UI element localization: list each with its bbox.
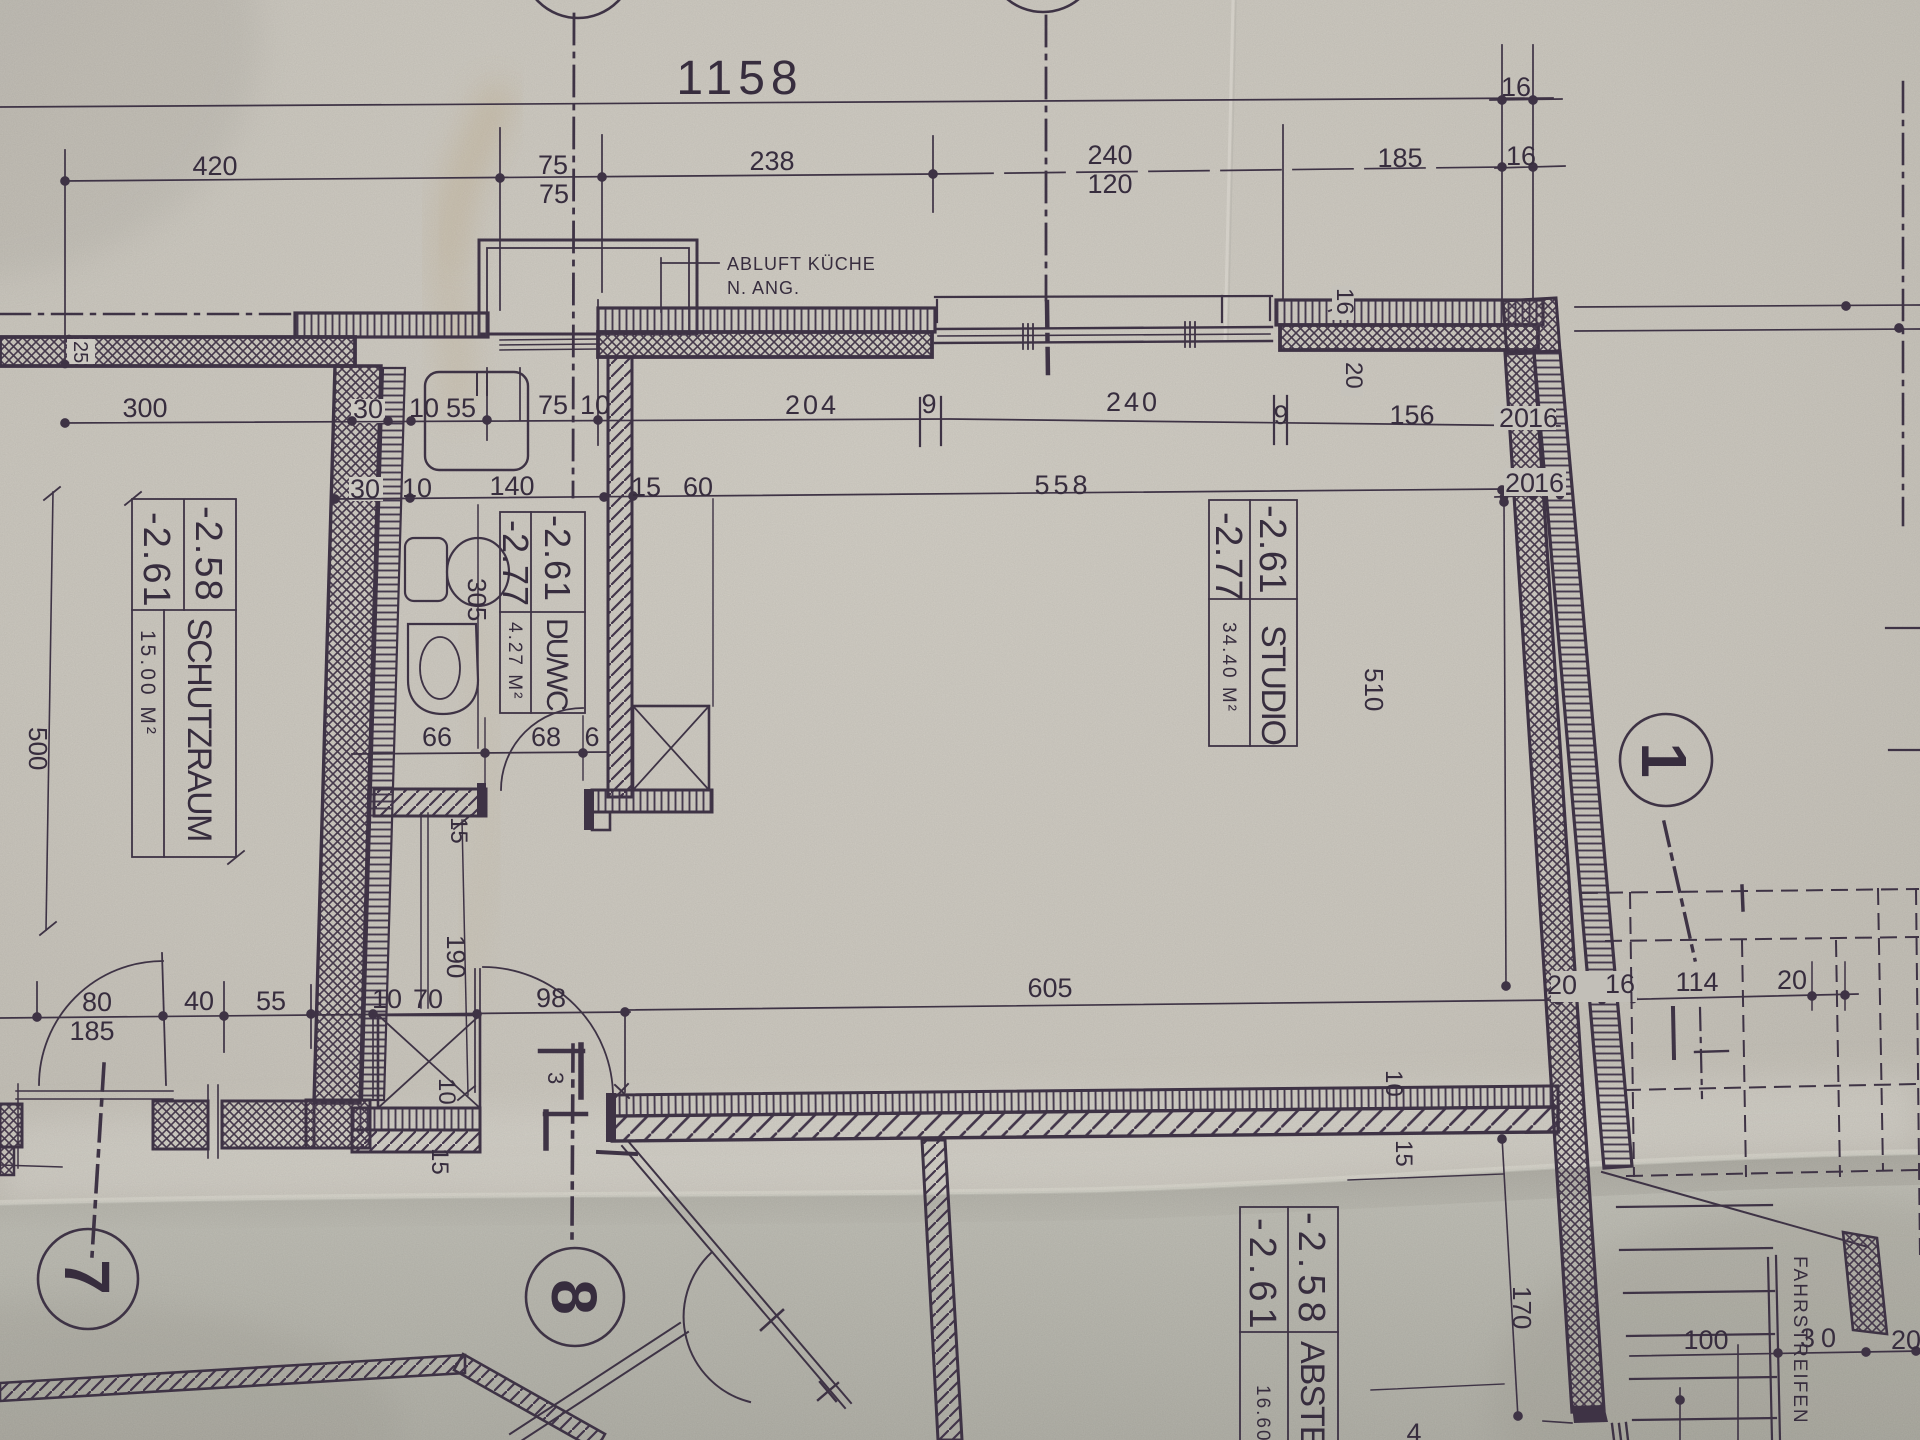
svg-text:SCHUTZRAUM: SCHUTZRAUM — [180, 618, 218, 841]
svg-text:15: 15 — [631, 472, 661, 502]
svg-text:240: 240 — [1106, 387, 1160, 417]
svg-text:-2.61: -2.61 — [1251, 505, 1293, 594]
svg-text:20: 20 — [1499, 403, 1529, 433]
svg-text:10: 10 — [402, 473, 432, 503]
svg-text:605: 605 — [1027, 973, 1072, 1003]
svg-text:68: 68 — [531, 722, 561, 752]
svg-text:156: 156 — [1389, 400, 1434, 430]
svg-text:FAHRSTREIFEN: FAHRSTREIFEN — [1789, 1256, 1810, 1425]
svg-text:-2.61: -2.61 — [1241, 1218, 1283, 1335]
svg-text:100: 100 — [1683, 1325, 1728, 1355]
svg-text:1: 1 — [1628, 742, 1700, 778]
svg-text:ABSTELLR: ABSTELLR — [1293, 1341, 1331, 1440]
svg-text:558: 558 — [1034, 470, 1091, 500]
svg-text:9: 9 — [921, 389, 936, 419]
svg-text:140: 140 — [489, 471, 534, 501]
svg-text:ABLUFT KÜCHE: ABLUFT KÜCHE — [727, 254, 876, 274]
svg-text:190: 190 — [441, 935, 471, 978]
svg-text:20: 20 — [1547, 970, 1577, 1000]
svg-text:34.40 M²: 34.40 M² — [1218, 622, 1239, 713]
svg-text:4: 4 — [1406, 1418, 1421, 1440]
svg-text:20: 20 — [1340, 362, 1367, 389]
svg-text:-2.58: -2.58 — [1290, 1212, 1332, 1329]
svg-text:510: 510 — [1359, 668, 1389, 711]
svg-text:240: 240 — [1087, 140, 1132, 170]
svg-text:420: 420 — [192, 151, 237, 181]
svg-text:6: 6 — [584, 722, 599, 752]
svg-text:-2.61: -2.61 — [537, 515, 578, 602]
svg-text:30: 30 — [353, 394, 383, 424]
svg-text:10: 10 — [409, 393, 439, 423]
svg-text:70: 70 — [413, 984, 443, 1014]
svg-text:-2.58: -2.58 — [187, 506, 229, 603]
svg-text:300: 300 — [122, 393, 167, 423]
svg-text:7: 7 — [51, 1259, 123, 1295]
svg-text:16: 16 — [1501, 72, 1531, 102]
svg-text:60: 60 — [683, 472, 713, 502]
svg-text:114: 114 — [1675, 967, 1718, 997]
svg-text:120: 120 — [1087, 169, 1132, 199]
svg-text:-2.77: -2.77 — [495, 520, 536, 607]
svg-text:-2.61: -2.61 — [135, 512, 177, 609]
svg-text:1158: 1158 — [676, 52, 803, 105]
svg-text:20: 20 — [1505, 468, 1535, 498]
svg-text:10: 10 — [433, 1078, 460, 1105]
svg-text:15.00 M²: 15.00 M² — [136, 630, 159, 737]
svg-text:-2.77: -2.77 — [1207, 512, 1249, 601]
svg-text:40: 40 — [184, 986, 214, 1016]
svg-text:80: 80 — [82, 987, 112, 1017]
svg-text:15: 15 — [445, 817, 472, 844]
svg-text:STUDIO: STUDIO — [1254, 625, 1292, 745]
svg-text:16.60 M: 16.60 M — [1252, 1385, 1273, 1440]
svg-text:55: 55 — [446, 393, 476, 423]
svg-text:20: 20 — [1891, 1325, 1920, 1355]
svg-text:15: 15 — [1390, 1140, 1417, 1167]
svg-text:3: 3 — [543, 1072, 568, 1084]
svg-text:55: 55 — [256, 986, 286, 1016]
svg-text:75: 75 — [538, 150, 568, 180]
svg-text:66: 66 — [422, 722, 452, 752]
svg-text:16: 16 — [1506, 141, 1536, 171]
svg-text:25: 25 — [69, 341, 91, 363]
svg-text:10: 10 — [372, 984, 402, 1014]
svg-text:10: 10 — [1380, 1070, 1407, 1097]
svg-text:16: 16 — [1528, 403, 1558, 433]
svg-text:500: 500 — [23, 727, 53, 770]
svg-text:305: 305 — [462, 578, 492, 621]
svg-text:185: 185 — [1377, 143, 1422, 173]
svg-text:DU/WC: DU/WC — [540, 618, 573, 711]
svg-text:N. ANG.: N. ANG. — [727, 278, 800, 298]
svg-text:170: 170 — [1507, 1286, 1537, 1329]
svg-text:98: 98 — [536, 983, 566, 1013]
svg-text:30: 30 — [350, 474, 380, 504]
svg-text:4.27 M²: 4.27 M² — [504, 622, 525, 700]
svg-text:185: 185 — [69, 1016, 114, 1046]
svg-text:75: 75 — [539, 179, 569, 209]
svg-text:16: 16 — [1331, 288, 1358, 315]
svg-text:9: 9 — [1273, 400, 1288, 430]
svg-text:204: 204 — [785, 390, 839, 420]
svg-text:10: 10 — [580, 390, 610, 420]
svg-text:15: 15 — [426, 1148, 453, 1175]
svg-text:16: 16 — [1605, 969, 1635, 999]
svg-text:75: 75 — [538, 390, 568, 420]
svg-text:20: 20 — [1777, 965, 1807, 995]
svg-text:16: 16 — [1534, 468, 1564, 498]
svg-text:8: 8 — [538, 1279, 610, 1315]
svg-text:238: 238 — [749, 146, 794, 176]
